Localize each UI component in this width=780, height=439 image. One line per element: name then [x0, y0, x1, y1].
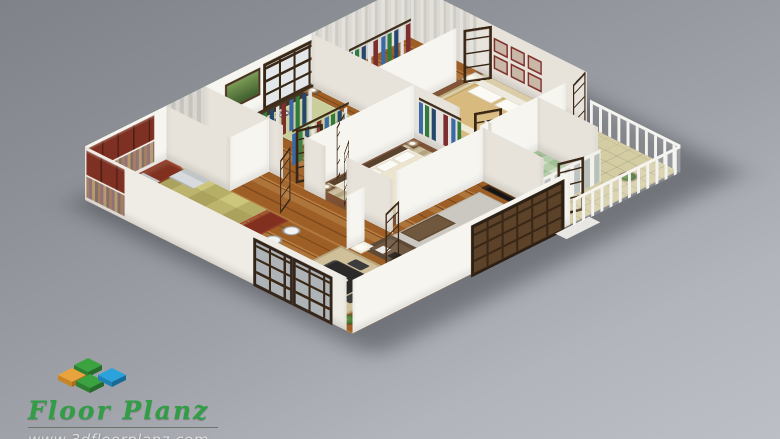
- bedroom3-picture-4: [494, 55, 508, 76]
- brand-name: Floor Planz: [28, 398, 238, 423]
- apartment-3d-model: [85, 37, 714, 352]
- brand-underline: [28, 427, 218, 428]
- floor-plan-render: Floor Planz www.3dfloorplanz.com: [0, 0, 780, 439]
- brand-website: www.3dfloorplanz.com: [28, 431, 238, 439]
- living-north-wall-a: [347, 187, 365, 250]
- bedroom3-picture-5: [511, 63, 525, 84]
- closet3-door-frame: [463, 26, 492, 84]
- bedroom3-picture-6: [528, 72, 542, 93]
- brand-watermark: Floor Planz www.3dfloorplanz.com: [28, 356, 238, 439]
- floor-planz-logo-blocks: [58, 356, 130, 396]
